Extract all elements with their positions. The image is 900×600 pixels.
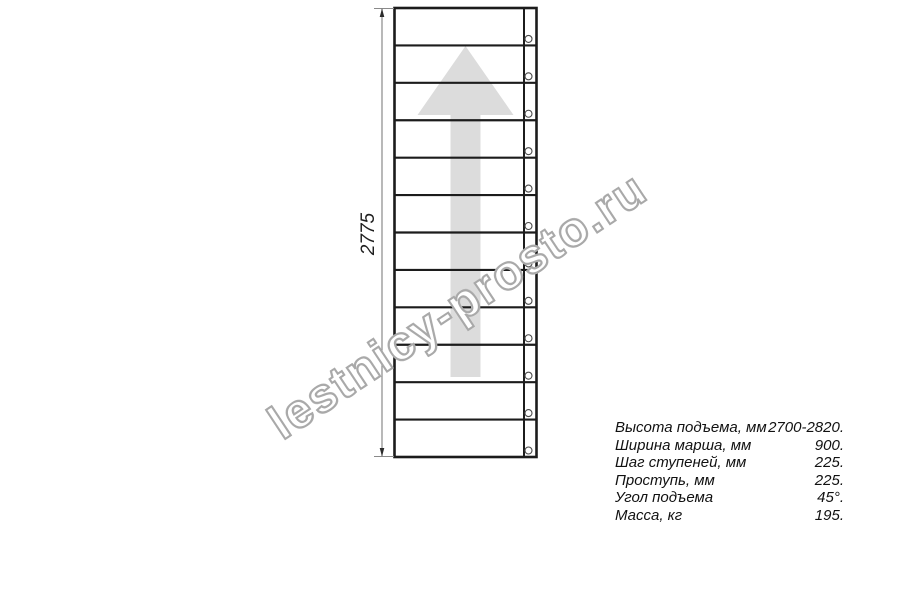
spec-row: Масса, кг195. (615, 507, 844, 525)
screw-circle (525, 35, 532, 42)
screw-circle (525, 185, 532, 192)
spec-row: Высота подъема, мм2700-2820. (615, 419, 844, 437)
spec-label: Высота подъема, мм (615, 419, 767, 437)
screw-circle (525, 410, 532, 417)
screw-circle (525, 447, 532, 454)
drawing-canvas: 2775 lestnicy-prosto.ru Высота подъема, … (0, 0, 900, 600)
spec-value: 900. (815, 437, 844, 455)
screw-circle (525, 335, 532, 342)
dimension-arrowhead-top (380, 9, 385, 18)
screw-circle (525, 372, 532, 379)
spec-row: Шаг ступеней, мм225. (615, 454, 844, 472)
dimension-label: 2775 (358, 194, 380, 274)
spec-table: Высота подъема, мм2700-2820.Ширина марша… (615, 419, 844, 524)
screw-circle (525, 73, 532, 80)
spec-value: 45°. (817, 489, 844, 507)
dimension-arrowhead-bottom (380, 448, 385, 457)
screw-circle (525, 110, 532, 117)
spec-value: 225. (815, 454, 844, 472)
screw-circle (525, 297, 532, 304)
spec-value: 225. (815, 472, 844, 490)
spec-row: Угол подъема45°. (615, 489, 844, 507)
screw-circle (525, 148, 532, 155)
spec-row: Ширина марша, мм900. (615, 437, 844, 455)
spec-label: Масса, кг (615, 507, 682, 525)
spec-label: Шаг ступеней, мм (615, 454, 746, 472)
spec-value: 195. (815, 507, 844, 525)
spec-row: Проступь, мм225. (615, 472, 844, 490)
spec-label: Ширина марша, мм (615, 437, 751, 455)
spec-value: 2700-2820. (768, 419, 844, 437)
spec-label: Угол подъема (615, 489, 713, 507)
spec-label: Проступь, мм (615, 472, 715, 490)
